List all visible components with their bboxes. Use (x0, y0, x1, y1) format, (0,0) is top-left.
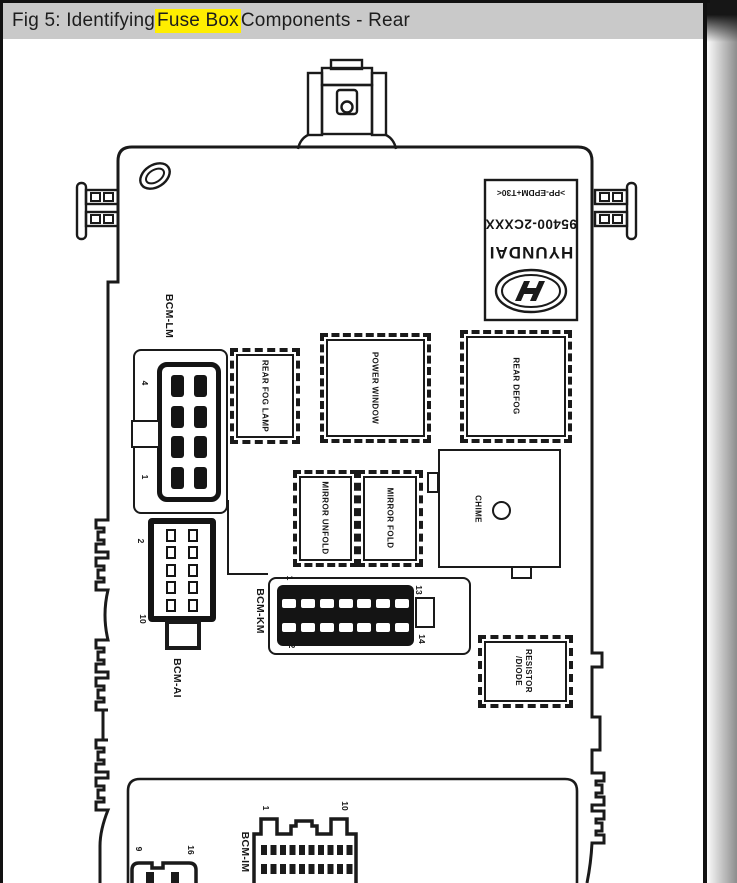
label-chime: CHIME (474, 495, 483, 523)
pin-number-bcm-im-10: 10 (340, 801, 350, 810)
page-edge-shadow-top (707, 0, 737, 42)
pin (395, 623, 409, 632)
pin (188, 599, 198, 612)
label-plate-part-number: 95400-2CXXX (485, 217, 577, 232)
pin-number-bcm-im-1: 1 (261, 806, 271, 811)
connector-bcm-lm-pins (157, 362, 221, 502)
pin (188, 529, 198, 542)
page: Fig 5: Identifying Fuse Box Components -… (0, 0, 737, 883)
pin-number-bcm-km-13: 13 (414, 585, 424, 594)
bcm-km-latch (415, 597, 435, 628)
page-border-right (703, 0, 707, 883)
pin (194, 436, 207, 458)
connector-bcm-km-pins (277, 585, 414, 646)
pin (166, 546, 176, 559)
right-side-bracket (595, 183, 636, 239)
pin (357, 623, 371, 632)
pin (171, 436, 184, 458)
label-bcm-ai: BCM-AI (171, 658, 183, 698)
pin (339, 623, 353, 632)
pin (301, 599, 315, 608)
label-plate-brand: HYUNDAI (489, 242, 573, 262)
label-resistor-line1: RESISTOR (523, 649, 533, 693)
pin (376, 623, 390, 632)
pin (166, 564, 176, 577)
label-resistor-diode: RESISTOR /DIODE (513, 649, 533, 693)
pin (357, 599, 371, 608)
page-border-top (0, 0, 710, 3)
label-bcm-im: BCM-IM (239, 832, 251, 873)
oval-hole (136, 158, 175, 194)
pin (188, 581, 198, 594)
page-edge-shadow (707, 0, 737, 883)
pin (188, 564, 198, 577)
chime-circle (492, 501, 511, 520)
connector-bcm-ai (148, 518, 216, 622)
label-mirror-fold: MIRROR FOLD (386, 488, 395, 549)
pin (282, 599, 296, 608)
left-side-bracket (77, 183, 118, 239)
hyundai-h-logo-icon (515, 281, 545, 301)
pin-number-bcm-lm-1: 1 (140, 475, 150, 480)
label-rear-fog-lamp: REAR FOG LAMP (261, 360, 270, 432)
pin (301, 623, 315, 632)
pin (320, 623, 334, 632)
bcm-lm-key-notch (131, 420, 160, 448)
top-bracket (298, 60, 396, 149)
connector-aux (132, 863, 196, 883)
connector-bcm-im (254, 819, 356, 883)
pin-number-bcm-km-14: 14 (417, 634, 427, 643)
page-border-left (0, 0, 3, 883)
label-bcm-lm: BCM-LM (163, 294, 175, 338)
label-power-window: POWER WINDOW (371, 352, 380, 424)
pin (194, 375, 207, 397)
pin (166, 599, 176, 612)
label-rear-defog: REAR DEFOG (512, 357, 521, 414)
pin (194, 406, 207, 428)
pin-number-bcm-km-1: 1 (285, 576, 295, 581)
label-resistor-line2: /DIODE (513, 649, 523, 693)
pin-number-bcm-ai-10: 10 (138, 614, 148, 623)
pin (395, 599, 409, 608)
pin-number-bcm-lm-4: 4 (140, 381, 150, 386)
pin-number-bcm-km-2: 2 (287, 644, 297, 649)
pin (339, 599, 353, 608)
pin (376, 599, 390, 608)
pin-number-bcm-ai-2: 2 (136, 539, 146, 544)
bcm-ai-foot (165, 620, 201, 650)
pin (166, 529, 176, 542)
pin (188, 546, 198, 559)
pin (171, 467, 184, 489)
label-plate-material-code: >PP-EPDM+T30< (497, 188, 565, 198)
pin (166, 581, 176, 594)
chime-left-tab (427, 472, 439, 493)
pin (171, 375, 184, 397)
label-mirror-unfold: MIRROR UNFOLD (321, 481, 330, 554)
pin (282, 623, 296, 632)
pin-number-aux-9: 9 (134, 847, 144, 852)
pin (320, 599, 334, 608)
pin (194, 467, 207, 489)
chime-bottom-tab (511, 566, 532, 579)
label-bcm-km: BCM-KM (254, 588, 266, 634)
pin (171, 406, 184, 428)
pin-number-aux-16: 16 (186, 845, 196, 854)
